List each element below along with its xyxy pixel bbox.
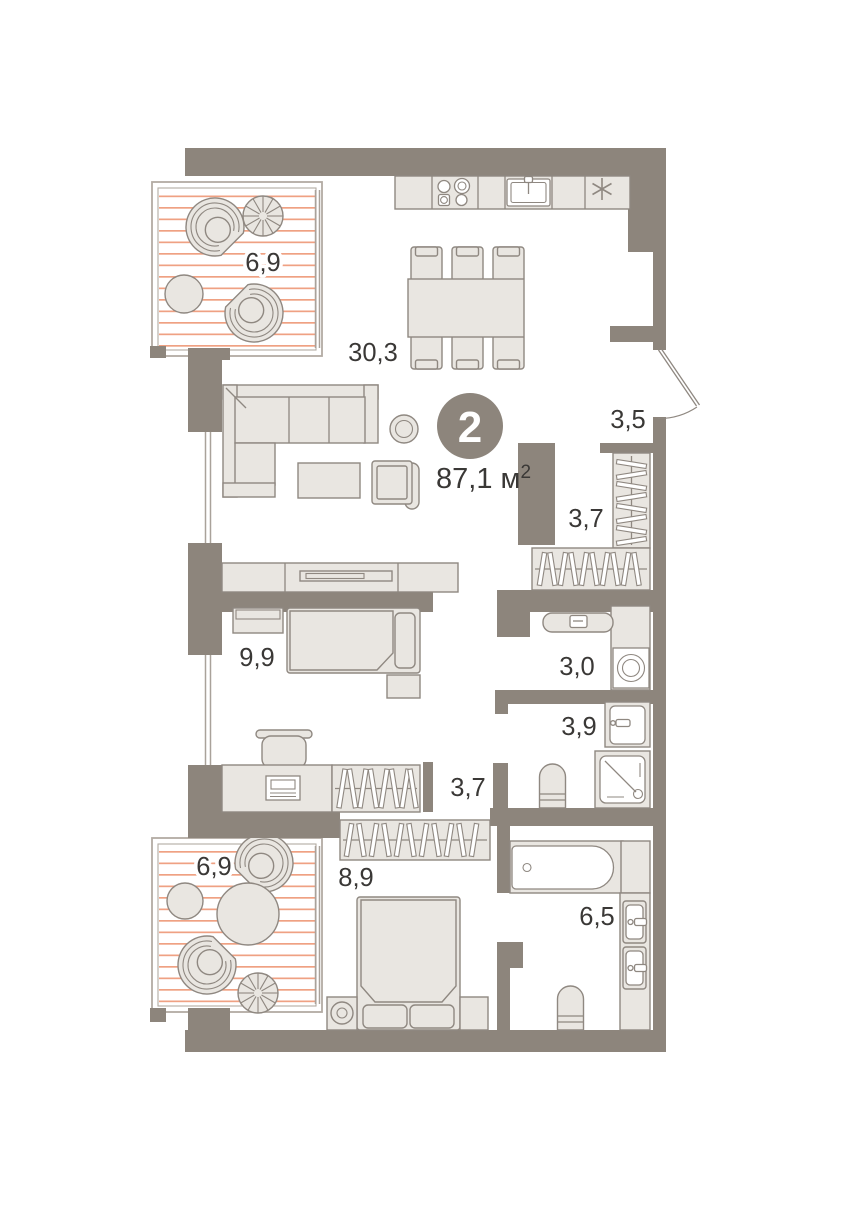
room-label-balcony-bottom: 6,9 (196, 853, 231, 881)
door-swing-arc (658, 407, 697, 419)
side-table (390, 415, 418, 443)
total-area: 87,1 м2 (436, 462, 531, 495)
room-label-bathroom-master: 6,5 (579, 903, 614, 931)
bed-single (287, 608, 420, 673)
floor-plan-page: 6,9 30,3 3,5 3,7 3,0 9,9 3,9 3,7 6,9 8,9… (0, 0, 850, 1200)
wardrobe-master (340, 820, 490, 860)
room-label-balcony-top: 6,9 (245, 249, 280, 277)
washing-machine (613, 648, 649, 688)
dining-chair (493, 335, 524, 369)
laptop (266, 776, 300, 800)
tv-unit (222, 563, 458, 592)
bedside-bench (387, 675, 420, 698)
shower (595, 751, 650, 808)
bedroom-master-furniture (327, 820, 490, 1030)
toilet (558, 986, 584, 1030)
room-label-wardrobe: 3,7 (568, 505, 603, 533)
desk (222, 765, 332, 812)
balcony-top (152, 182, 322, 356)
room-label-hallway: 3,5 (610, 406, 645, 434)
room-label-laundry: 3,0 (559, 653, 594, 681)
dining-chair (411, 335, 442, 369)
patio-table (167, 883, 203, 919)
dining-set (408, 247, 524, 369)
patio-table-large (217, 883, 279, 945)
wardrobe-desk-side (332, 765, 420, 812)
pillow (410, 1005, 454, 1028)
coffee-table (298, 463, 360, 498)
patio-plant (238, 973, 278, 1013)
pillow (363, 1005, 407, 1028)
room-label-bedroom-master: 8,9 (338, 864, 373, 892)
armchair (372, 461, 419, 509)
room-label-living: 30,3 (348, 339, 398, 367)
lamp (331, 1002, 353, 1024)
blanket (361, 900, 456, 1002)
desk-chair (256, 730, 312, 768)
room-label-bedroom-small: 9,9 (239, 644, 274, 672)
wardrobe-unit-vertical (613, 453, 650, 548)
patio-plant (243, 196, 283, 236)
nightstand-left (327, 997, 357, 1030)
kitchen-sink-icon (507, 177, 550, 207)
room-label-bathroom-small: 3,9 (561, 713, 596, 741)
bedroom-small-furniture (222, 608, 420, 812)
wardrobe-unit-horizontal (532, 548, 650, 590)
nightstand-right (460, 997, 488, 1030)
patio-table (165, 275, 203, 313)
floor-plan: 6,9 30,3 3,5 3,7 3,0 9,9 3,9 3,7 6,9 8,9… (0, 0, 850, 1200)
balcony-bottom (152, 822, 322, 1013)
dresser (233, 608, 283, 633)
toilet (540, 764, 566, 808)
bathroom-master-fixtures (510, 841, 650, 1030)
apartment-badge: 2 87,1 м2 (436, 393, 531, 495)
dining-chair (452, 247, 483, 281)
dining-chair (411, 247, 442, 281)
dining-chair (493, 247, 524, 281)
bathtub (510, 841, 623, 893)
bath-cabinet (621, 841, 650, 893)
sink (623, 901, 647, 943)
tv (300, 571, 392, 581)
bed-double (357, 897, 460, 1030)
blanket (290, 611, 393, 670)
pillow (395, 613, 415, 668)
dining-table (408, 279, 524, 337)
room-label-corridor: 3,7 (450, 774, 485, 802)
vanity-sink (605, 702, 650, 747)
entry-door (658, 349, 700, 419)
dining-chair (452, 335, 483, 369)
rooms-count: 2 (458, 403, 482, 452)
kitchen (395, 176, 630, 209)
ironing-board (543, 613, 613, 632)
sink (623, 947, 647, 989)
living-room-furniture (222, 385, 458, 592)
